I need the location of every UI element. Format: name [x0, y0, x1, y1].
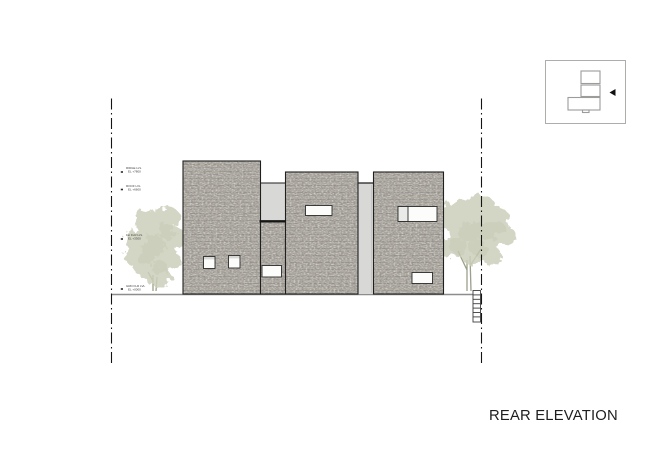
wall-noise-light — [261, 222, 286, 295]
view-title: REAR ELEVATION — [489, 408, 618, 424]
key-plan-room-top — [581, 71, 600, 84]
window-right-block-upper-pane — [398, 207, 408, 222]
level-value: EL +3300 — [126, 238, 142, 242]
level-tick-icon — [121, 171, 123, 173]
wall-below-recess — [261, 222, 286, 295]
wall-noise-light — [286, 172, 359, 294]
level-label: ROOF LVL — [126, 185, 141, 189]
key-plan — [546, 61, 626, 124]
key-plan-room-notch — [583, 110, 590, 113]
level-marker-first-floor: 1st FLR LVL EL +3300 — [126, 234, 142, 241]
wall-right-block — [374, 172, 444, 294]
drawing-sheet: RIDGE LVL EL +7800 ROOF LVL EL +6600 1st… — [0, 0, 658, 464]
key-plan-room-mid — [581, 85, 600, 97]
ladder-detail — [473, 291, 481, 323]
rear-elevation-drawing — [0, 0, 658, 464]
window-mid-block — [306, 206, 333, 216]
window-small-1-shade — [204, 257, 215, 259]
level-label: GRD FLR LVL — [126, 285, 145, 289]
tree-right — [437, 195, 515, 291]
level-marker-ground-floor: GRD FLR LVL EL +0000 — [126, 285, 145, 292]
window-wide-left-block — [262, 266, 282, 278]
wall-noise-light — [374, 172, 444, 294]
level-value: EL +0000 — [126, 288, 145, 292]
tree-left — [124, 207, 185, 291]
wall-left-block — [183, 161, 261, 294]
level-tick-icon — [121, 288, 123, 290]
tree-left-foliage — [124, 207, 185, 287]
level-value: EL +7800 — [126, 171, 141, 175]
level-tick-icon — [121, 189, 123, 191]
wall-noise-light — [183, 161, 261, 294]
window-right-block-lower — [412, 273, 433, 284]
level-marker-roof: ROOF LVL EL +6600 — [126, 185, 141, 192]
key-plan-room-bottom — [568, 98, 600, 111]
tree-right-foliage — [437, 195, 515, 264]
level-tick-icon — [121, 238, 123, 240]
level-marker-ticks — [121, 171, 123, 290]
recess-link-band — [358, 183, 374, 294]
window-small-2-shade — [229, 256, 240, 258]
level-marker-ridge: RIDGE LVL EL +7800 — [126, 167, 141, 174]
recess-panel — [260, 183, 286, 222]
wall-mid-block — [286, 172, 359, 294]
level-value: EL +6600 — [126, 188, 141, 192]
